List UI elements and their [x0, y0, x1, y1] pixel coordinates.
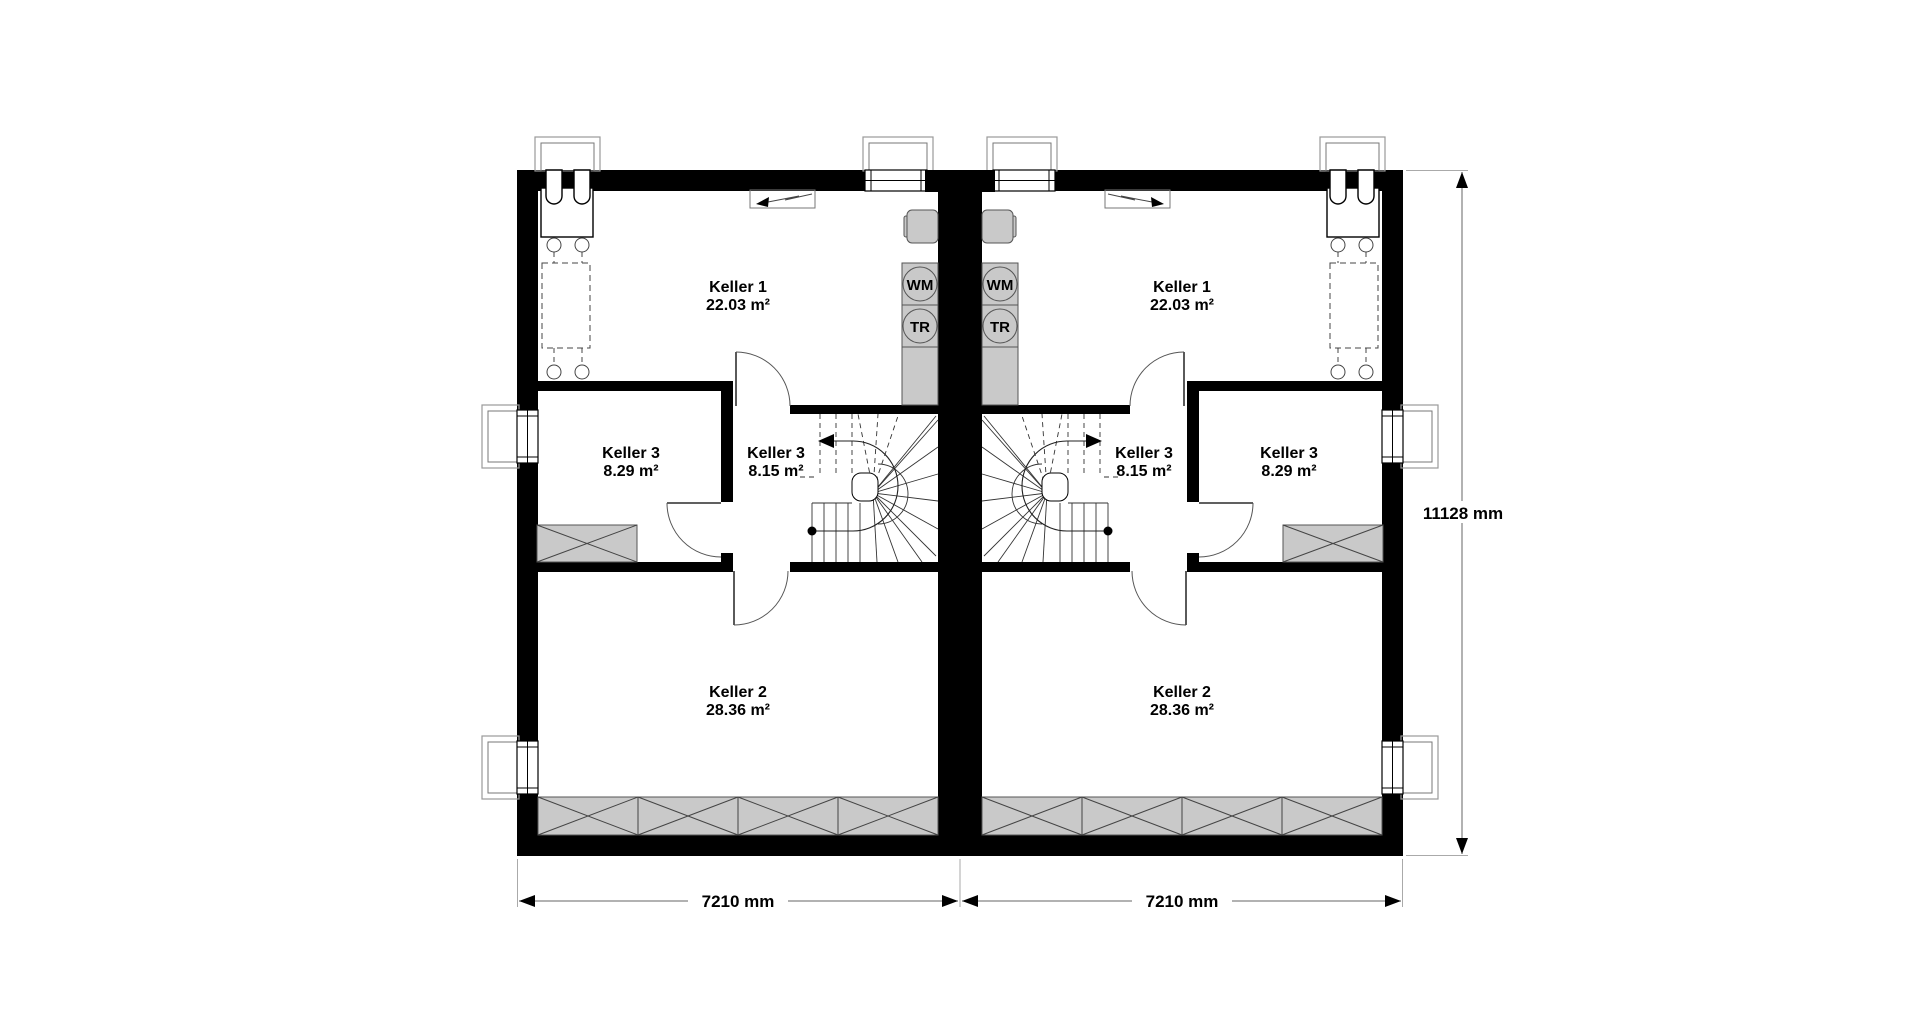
wall-stairhall-top-right	[982, 405, 1130, 414]
room-label-keller1-right: Keller 1	[1153, 279, 1211, 296]
appliance-stack-right: WM TR	[982, 263, 1018, 405]
room-label-keller3-stair-left: Keller 3	[747, 445, 805, 462]
room-label-keller3-side-left: Keller 3	[602, 445, 660, 462]
washer-label: WM	[987, 277, 1014, 294]
wall-keller3-divider-left	[721, 381, 733, 502]
door-keller1-to-hall-left	[736, 352, 790, 406]
light-well-inner-box	[869, 143, 927, 171]
hatch-strip-right	[982, 797, 1382, 835]
stair-lower-flight	[1060, 503, 1108, 562]
light-well-inner-box	[993, 143, 1051, 171]
dryer-label: TR	[990, 319, 1010, 336]
hatch-strip-left	[538, 797, 938, 835]
window-right-lower	[1382, 736, 1438, 799]
stair-winder-treads	[873, 416, 938, 562]
light-well-inner-box	[488, 742, 519, 793]
light-well-box	[987, 137, 1057, 171]
washer-label: WM	[907, 277, 934, 294]
window-right-upper	[1382, 405, 1438, 468]
stair-winder-treads	[982, 416, 1047, 562]
room-area-keller1-right: 22.03 m²	[1150, 297, 1214, 314]
service-entry-arrow-left	[750, 190, 815, 208]
dim-arrow-icon	[1385, 895, 1401, 907]
dim-label-left-width: 7210 mm	[702, 892, 775, 911]
dim-arrow-icon	[1456, 838, 1468, 854]
staircase-right	[982, 414, 1120, 562]
dimension-bottom-right: 7210 mm	[962, 859, 1403, 911]
wall-keller2-top-a-left	[538, 562, 733, 572]
door-swing-arc	[1132, 571, 1186, 625]
flue-stub	[546, 170, 562, 204]
walking-line-start-dot	[1104, 527, 1113, 536]
room-area-keller2-right: 28.36 m²	[1150, 702, 1214, 719]
party-wall	[938, 170, 982, 856]
window-top-right-unit	[987, 137, 1057, 191]
dryer-label: TR	[910, 319, 930, 336]
dim-label-total-height: 11128 mm	[1423, 504, 1503, 523]
duct-shaft-dashed	[542, 263, 590, 348]
door-swing-arc	[1130, 352, 1184, 406]
door-hall-to-keller2-left	[734, 571, 788, 625]
arrow-head-icon	[1151, 197, 1164, 207]
wall-keller2-top-b-left	[790, 562, 938, 572]
door-hall-to-keller2-right	[1132, 571, 1186, 625]
dim-arrow-icon	[519, 895, 535, 907]
dimension-bottom-left: 7210 mm	[518, 859, 961, 911]
door-keller1-to-hall-right	[1130, 352, 1184, 406]
dim-arrow-icon	[1456, 172, 1468, 188]
storage-box-right	[1283, 525, 1383, 562]
stair-lower-flight	[812, 503, 860, 562]
appliance-stack-left: WM TR	[902, 263, 938, 405]
party-wall-head	[925, 170, 995, 192]
window-left-lower	[482, 736, 538, 799]
room-labels-right-unit: Keller 1 22.03 m² Keller 3 8.29 m² Kelle…	[1115, 279, 1318, 719]
arrow-head-icon	[756, 197, 769, 207]
room-label-keller3-stair-right: Keller 3	[1115, 445, 1173, 462]
storage-box-left	[537, 525, 637, 562]
door-keller3-right	[1199, 503, 1253, 557]
stair-newel	[1042, 473, 1068, 501]
room-area-keller3-stair-left: 8.15 m²	[748, 463, 803, 480]
light-well-inner-box	[1401, 742, 1432, 793]
room-area-keller2-left: 28.36 m²	[706, 702, 770, 719]
dim-label-right-width: 7210 mm	[1146, 892, 1219, 911]
wall-keller2-top-a-right	[1187, 562, 1382, 572]
room-label-keller2-left: Keller 2	[709, 684, 767, 701]
wall-keller1-keller3-left	[538, 381, 733, 391]
flue-stub	[1358, 170, 1374, 204]
dim-arrow-icon	[962, 895, 978, 907]
wall-stairhall-top-left	[790, 405, 938, 414]
dim-arrow-icon	[942, 895, 958, 907]
appliance-shaft	[902, 347, 938, 405]
door-swing-arc	[736, 352, 790, 406]
door-keller3-left	[667, 503, 721, 557]
walking-line-start-dot	[808, 527, 817, 536]
light-well-inner-box	[488, 411, 519, 462]
door-swing-arc	[1199, 503, 1253, 557]
door-swing-arc	[667, 503, 721, 557]
dimension-right-side: 11128 mm	[1406, 171, 1518, 856]
staircase-left	[800, 414, 938, 562]
flue-stub	[1330, 170, 1346, 204]
room-label-keller1-left: Keller 1	[709, 279, 767, 296]
window-left-upper	[482, 405, 538, 468]
door-swing-arc	[734, 571, 788, 625]
wall-keller3-divider-right	[1187, 381, 1199, 502]
stair-newel	[852, 473, 878, 501]
room-labels-left-unit: Keller 1 22.03 m² Keller 3 8.29 m² Kelle…	[602, 279, 805, 719]
room-area-keller3-side-left: 8.29 m²	[603, 463, 658, 480]
duct-shaft-dashed	[1330, 263, 1378, 348]
boiler-left	[904, 210, 938, 243]
window-top-left-unit	[863, 137, 933, 191]
room-label-keller3-side-right: Keller 3	[1260, 445, 1318, 462]
room-area-keller3-stair-right: 8.15 m²	[1116, 463, 1171, 480]
appliance-shaft	[982, 347, 1018, 405]
wall-keller1-keller3-right	[1187, 381, 1382, 391]
room-area-keller3-side-right: 8.29 m²	[1261, 463, 1316, 480]
light-well-box	[863, 137, 933, 171]
room-area-keller1-left: 22.03 m²	[706, 297, 770, 314]
room-label-keller2-right: Keller 2	[1153, 684, 1211, 701]
boiler-right	[982, 210, 1016, 243]
floor-plan-drawing: WM TR WM TR	[0, 0, 1920, 1026]
exterior-walls	[517, 170, 1403, 856]
wall-keller2-top-b-right	[982, 562, 1130, 572]
light-well-inner-box	[1401, 411, 1432, 462]
flue-stub	[574, 170, 590, 204]
floor-plan-page: WM TR WM TR	[0, 0, 1920, 1026]
service-entry-arrow-right	[1105, 190, 1170, 208]
